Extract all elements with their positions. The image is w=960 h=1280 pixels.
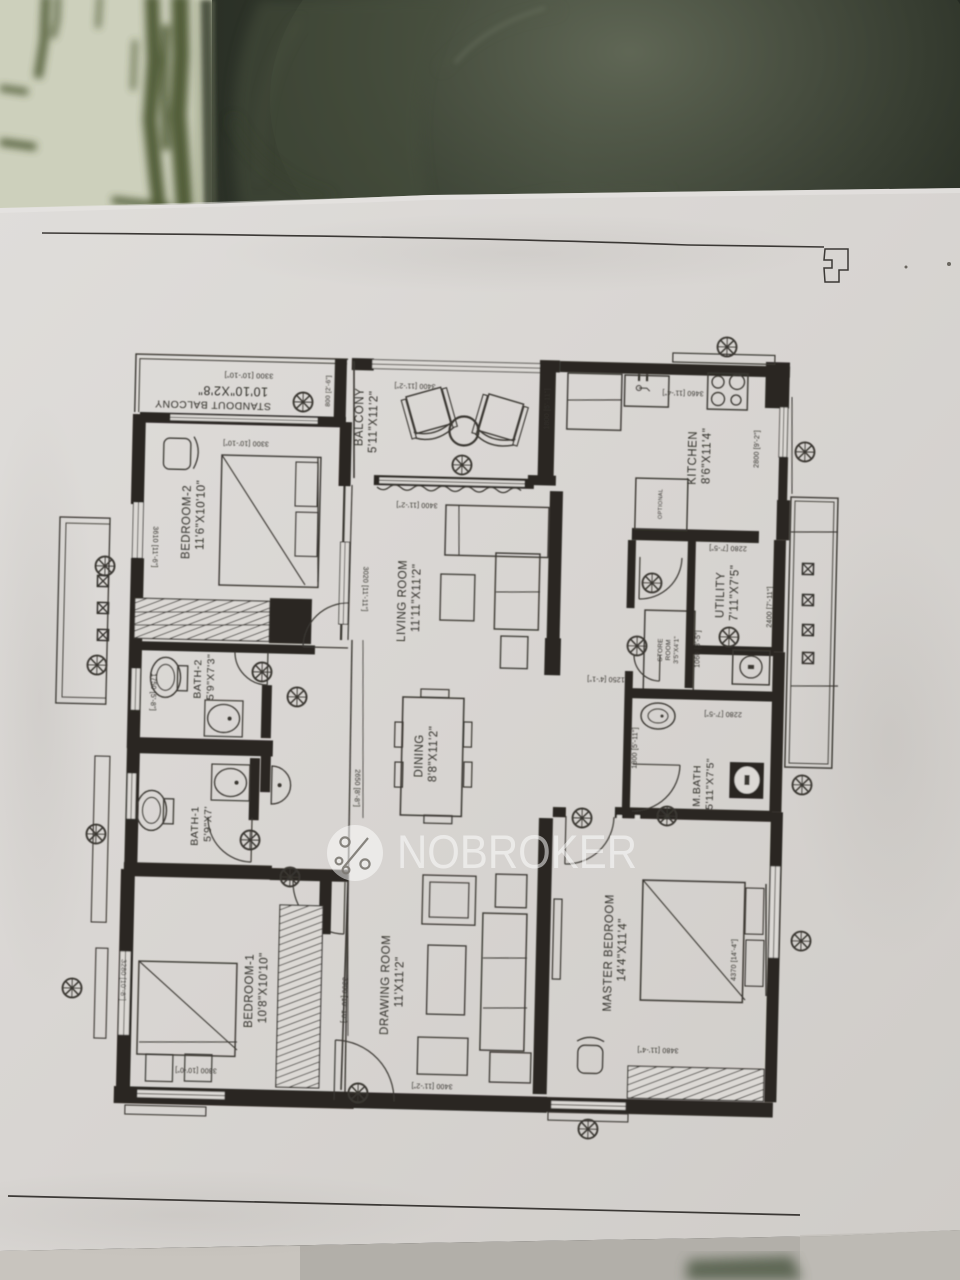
svg-text:5'9"X7'3": 5'9"X7'3" bbox=[204, 654, 217, 701]
svg-text:M.BATH: M.BATH bbox=[691, 765, 704, 807]
svg-text:2800 [9'-2"]: 2800 [9'-2"] bbox=[754, 430, 762, 468]
svg-text:11'6"X10'10": 11'6"X10'10" bbox=[194, 480, 208, 550]
svg-text:7'11"X7'5": 7'11"X7'5" bbox=[728, 565, 741, 622]
svg-text:3300 [10'-10"]: 3300 [10'-10"] bbox=[224, 370, 273, 380]
svg-text:2650 [8'-8"]: 2650 [8'-8"] bbox=[353, 769, 361, 807]
svg-text:1750 [5'-8"]: 1750 [5'-8"] bbox=[149, 673, 157, 711]
svg-text:5'11"X11'2": 5'11"X11'2" bbox=[367, 391, 380, 454]
svg-text:3300 [10'-10"]: 3300 [10'-10"] bbox=[339, 977, 347, 1023]
svg-text:BEDROOM-2: BEDROOM-2 bbox=[180, 485, 194, 559]
svg-text:BATH-2: BATH-2 bbox=[192, 659, 205, 699]
svg-text:LIVING ROOM: LIVING ROOM bbox=[396, 560, 410, 642]
svg-text:5'11"X7'5": 5'11"X7'5" bbox=[703, 758, 716, 810]
svg-text:KITCHEN: KITCHEN bbox=[686, 431, 699, 485]
svg-text:3610 [11'-6"]: 3610 [11'-6"] bbox=[151, 526, 159, 567]
svg-text:5'9"X7': 5'9"X7' bbox=[202, 806, 215, 842]
svg-text:3280 [10'-8"]: 3280 [10'-8"] bbox=[119, 959, 127, 1001]
svg-text:14'4"X11'4": 14'4"X11'4" bbox=[616, 918, 629, 982]
svg-text:3020 [11'-11"]: 3020 [11'-11"] bbox=[360, 567, 368, 612]
svg-text:3400 [11'-2"]: 3400 [11'-2"] bbox=[394, 381, 435, 389]
svg-text:3'5"X4'1": 3'5"X4'1" bbox=[673, 636, 681, 664]
svg-text:3300 [10'-0"]: 3300 [10'-0"] bbox=[175, 1065, 217, 1073]
svg-text:800 [2'-6"]: 800 [2'-6"] bbox=[325, 375, 333, 407]
svg-text:3300 [10'-10"]: 3300 [10'-10"] bbox=[223, 438, 269, 446]
svg-text:4370 [14'-4"]: 4370 [14'-4"] bbox=[731, 939, 739, 981]
svg-text:ROOM: ROOM bbox=[665, 639, 672, 660]
svg-text:8'8"X11'2": 8'8"X11'2" bbox=[427, 726, 440, 783]
svg-text:3480 [11'-4"]: 3480 [11'-4"] bbox=[637, 1045, 678, 1053]
svg-text:DRAWING ROOM: DRAWING ROOM bbox=[379, 935, 393, 1035]
svg-text:NOBROKER: NOBROKER bbox=[397, 825, 637, 878]
svg-text:2280 [7'-5"]: 2280 [7'-5"] bbox=[704, 710, 742, 718]
svg-text:1800 [5'-11"]: 1800 [5'-11"] bbox=[631, 727, 639, 768]
svg-text:1060 [3'-5"]: 1060 [3'-5"] bbox=[695, 630, 703, 668]
svg-text:10'8"X10'10": 10'8"X10'10" bbox=[257, 952, 271, 1023]
svg-text:UTILITY: UTILITY bbox=[715, 572, 728, 619]
svg-text:2400 [7'-11"]: 2400 [7'-11"] bbox=[767, 586, 775, 627]
svg-text:11'X11'2": 11'X11'2" bbox=[393, 956, 406, 1007]
svg-text:3400 [11'-2"]: 3400 [11'-2"] bbox=[396, 500, 437, 508]
svg-text:BALCONY: BALCONY bbox=[353, 388, 366, 447]
svg-text:3460 [11'-4"]: 3460 [11'-4"] bbox=[662, 389, 703, 397]
svg-text:1800 [5'-11"]: 1800 [5'-11"] bbox=[544, 388, 552, 429]
svg-text:1250 [4'-1"]: 1250 [4'-1"] bbox=[587, 675, 625, 683]
svg-text:11'11"X11'2": 11'11"X11'2" bbox=[410, 564, 424, 633]
svg-text:10'10"X2'8": 10'10"X2'8" bbox=[198, 383, 269, 399]
svg-text:BATH-1: BATH-1 bbox=[189, 806, 202, 846]
svg-text:2280 [7'-5"]: 2280 [7'-5"] bbox=[709, 544, 747, 552]
svg-text:BEDROOM-1: BEDROOM-1 bbox=[243, 954, 257, 1028]
svg-text:3400 [11'-2"]: 3400 [11'-2"] bbox=[411, 1081, 452, 1089]
svg-text:8'6"X11'4": 8'6"X11'4" bbox=[700, 428, 713, 485]
svg-text:STORE: STORE bbox=[657, 638, 665, 662]
svg-text:OPTIONAL: OPTIONAL bbox=[658, 489, 665, 519]
svg-text:DINING: DINING bbox=[413, 734, 426, 778]
